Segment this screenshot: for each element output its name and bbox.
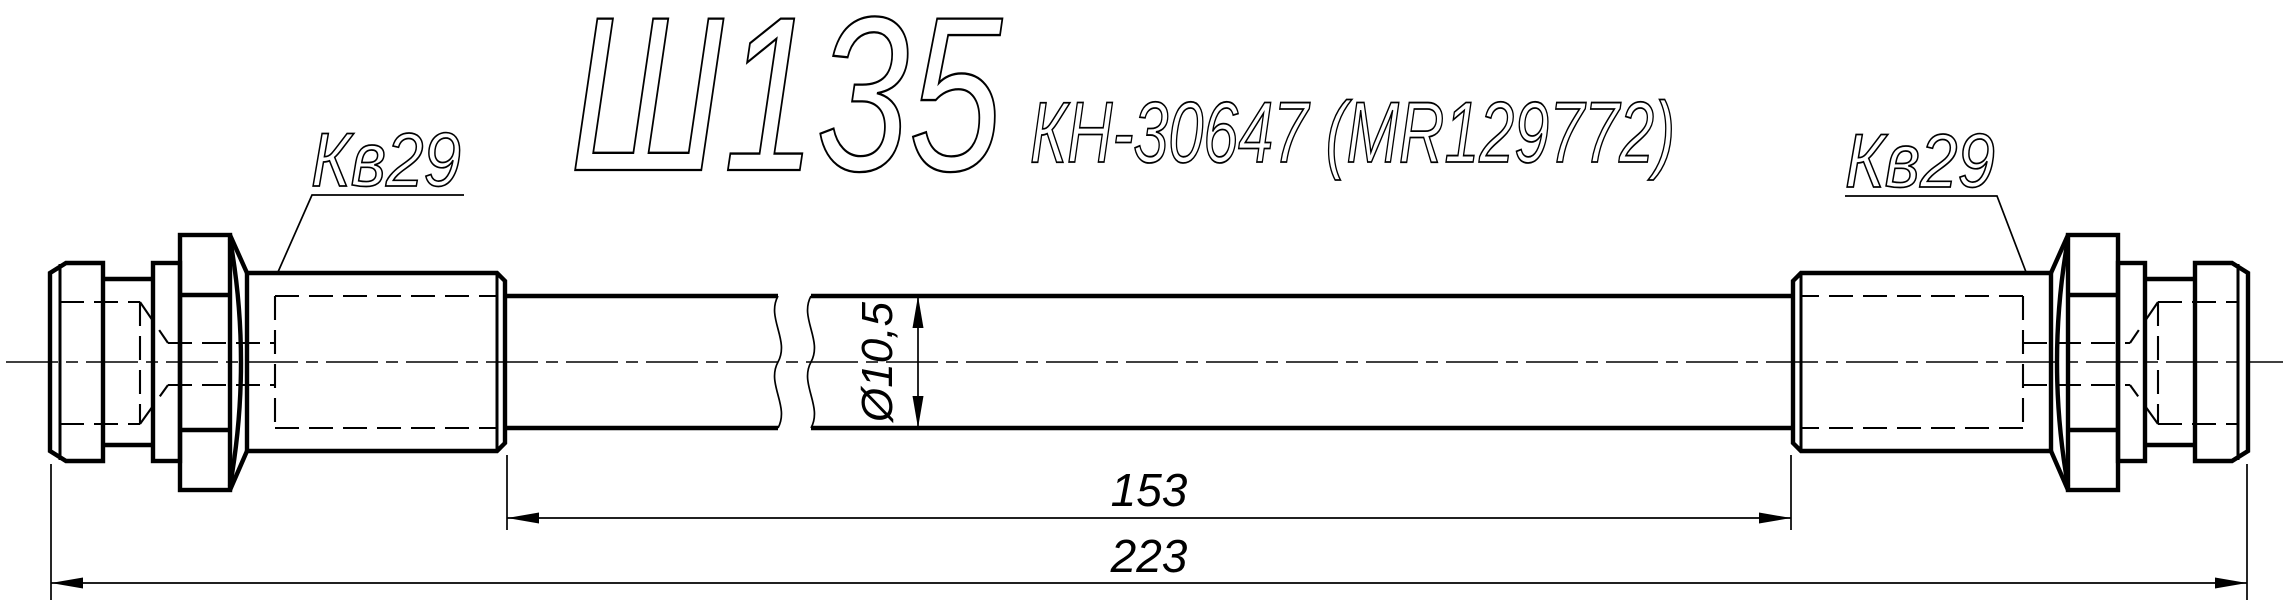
drawing-sheet: Ø10,5 153 223 Кв29 Кв29 Ш135 КН-30647 (M… — [0, 0, 2288, 608]
hose-length-dim-text: 153 — [1111, 464, 1188, 516]
part-code: КН-30647 (MR129772) — [1030, 85, 1675, 181]
arrowhead-right — [2215, 578, 2247, 589]
thread-callout-right: Кв29 — [1845, 119, 2026, 272]
arrowhead-up — [913, 296, 924, 328]
thread-label-left: Кв29 — [311, 118, 461, 203]
leader-line-left — [278, 195, 464, 272]
dimension-hose-length: 153 — [507, 455, 1791, 530]
arrowhead-left — [507, 513, 539, 524]
leader-line-right — [1845, 196, 2026, 272]
diameter-dim-text: Ø10,5 — [853, 302, 902, 424]
thread-callout-left: Кв29 — [278, 118, 464, 272]
arrowhead-left — [51, 578, 83, 589]
drawing-title: Ш135 — [570, 0, 1002, 217]
technical-drawing: Ø10,5 153 223 Кв29 Кв29 Ш135 КН-30647 (M… — [0, 0, 2288, 608]
arrowhead-right — [1759, 513, 1791, 524]
arrowhead-down — [913, 396, 924, 428]
overall-length-dim-text: 223 — [1110, 530, 1188, 582]
thread-label-right: Кв29 — [1845, 119, 1995, 204]
